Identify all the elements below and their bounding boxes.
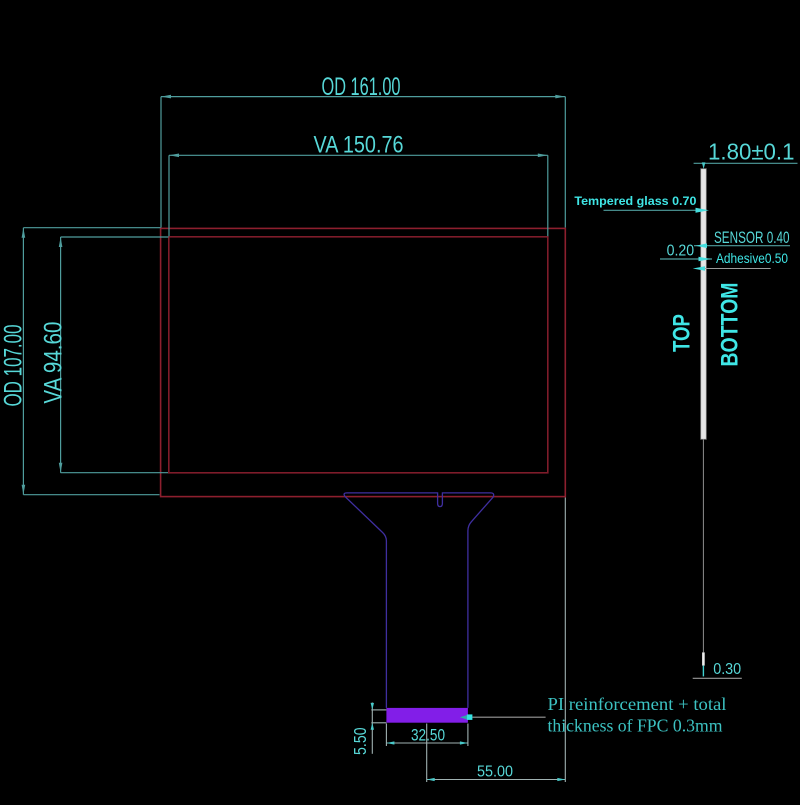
svg-text:5.50: 5.50 bbox=[350, 727, 370, 755]
svg-text:Adhesive0.50: Adhesive0.50 bbox=[716, 251, 788, 266]
svg-text:0.20: 0.20 bbox=[667, 242, 695, 259]
svg-text:BOTTOM: BOTTOM bbox=[717, 283, 744, 367]
svg-text:55.00: 55.00 bbox=[477, 764, 513, 781]
svg-text:PI reinforcement + total: PI reinforcement + total bbox=[548, 694, 727, 714]
svg-text:Tempered glass 0.70: Tempered glass 0.70 bbox=[574, 194, 696, 208]
svg-text:32.50: 32.50 bbox=[411, 726, 445, 744]
svg-text:thickness of FPC 0.3mm: thickness of FPC 0.3mm bbox=[548, 716, 723, 736]
svg-text:TOP: TOP bbox=[669, 314, 696, 352]
svg-text:VA 94.60: VA 94.60 bbox=[40, 322, 68, 404]
svg-text:SENSOR 0.40: SENSOR 0.40 bbox=[714, 229, 790, 247]
svg-text:1.80±0.1: 1.80±0.1 bbox=[708, 139, 795, 165]
svg-text:OD 161.00: OD 161.00 bbox=[322, 73, 401, 101]
svg-text:0.30: 0.30 bbox=[713, 661, 741, 678]
svg-text:OD 107.00: OD 107.00 bbox=[0, 325, 28, 407]
svg-text:VA 150.76: VA 150.76 bbox=[314, 132, 404, 159]
